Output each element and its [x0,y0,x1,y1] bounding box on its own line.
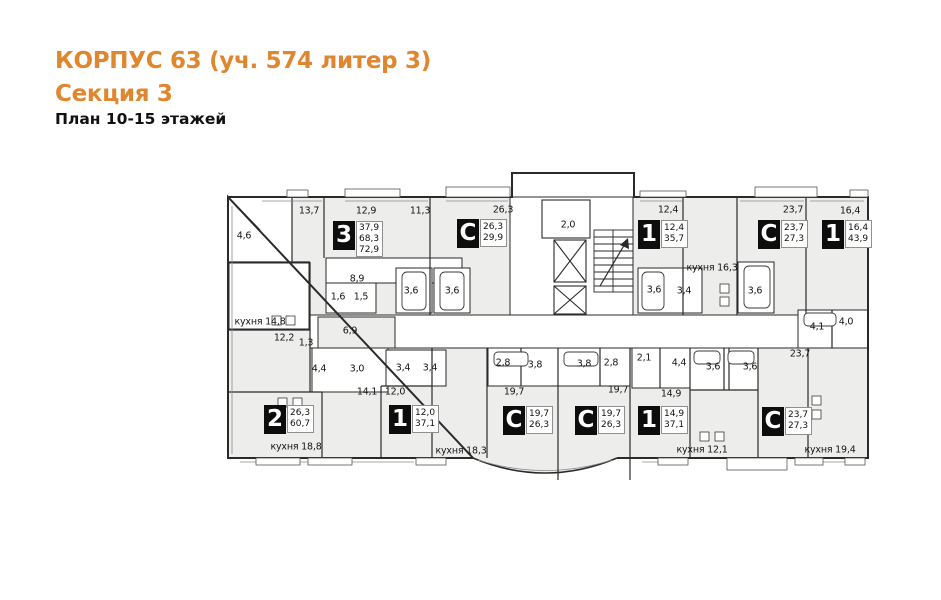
floor-plan: 4,613,712,911,326,32,012,423,716,48,91,6… [0,0,941,600]
floor-plan-page: КОРПУС 63 (уч. 574 литер 3) Секция 3 Пла… [0,0,941,600]
floor-plan-drawing [0,0,941,600]
